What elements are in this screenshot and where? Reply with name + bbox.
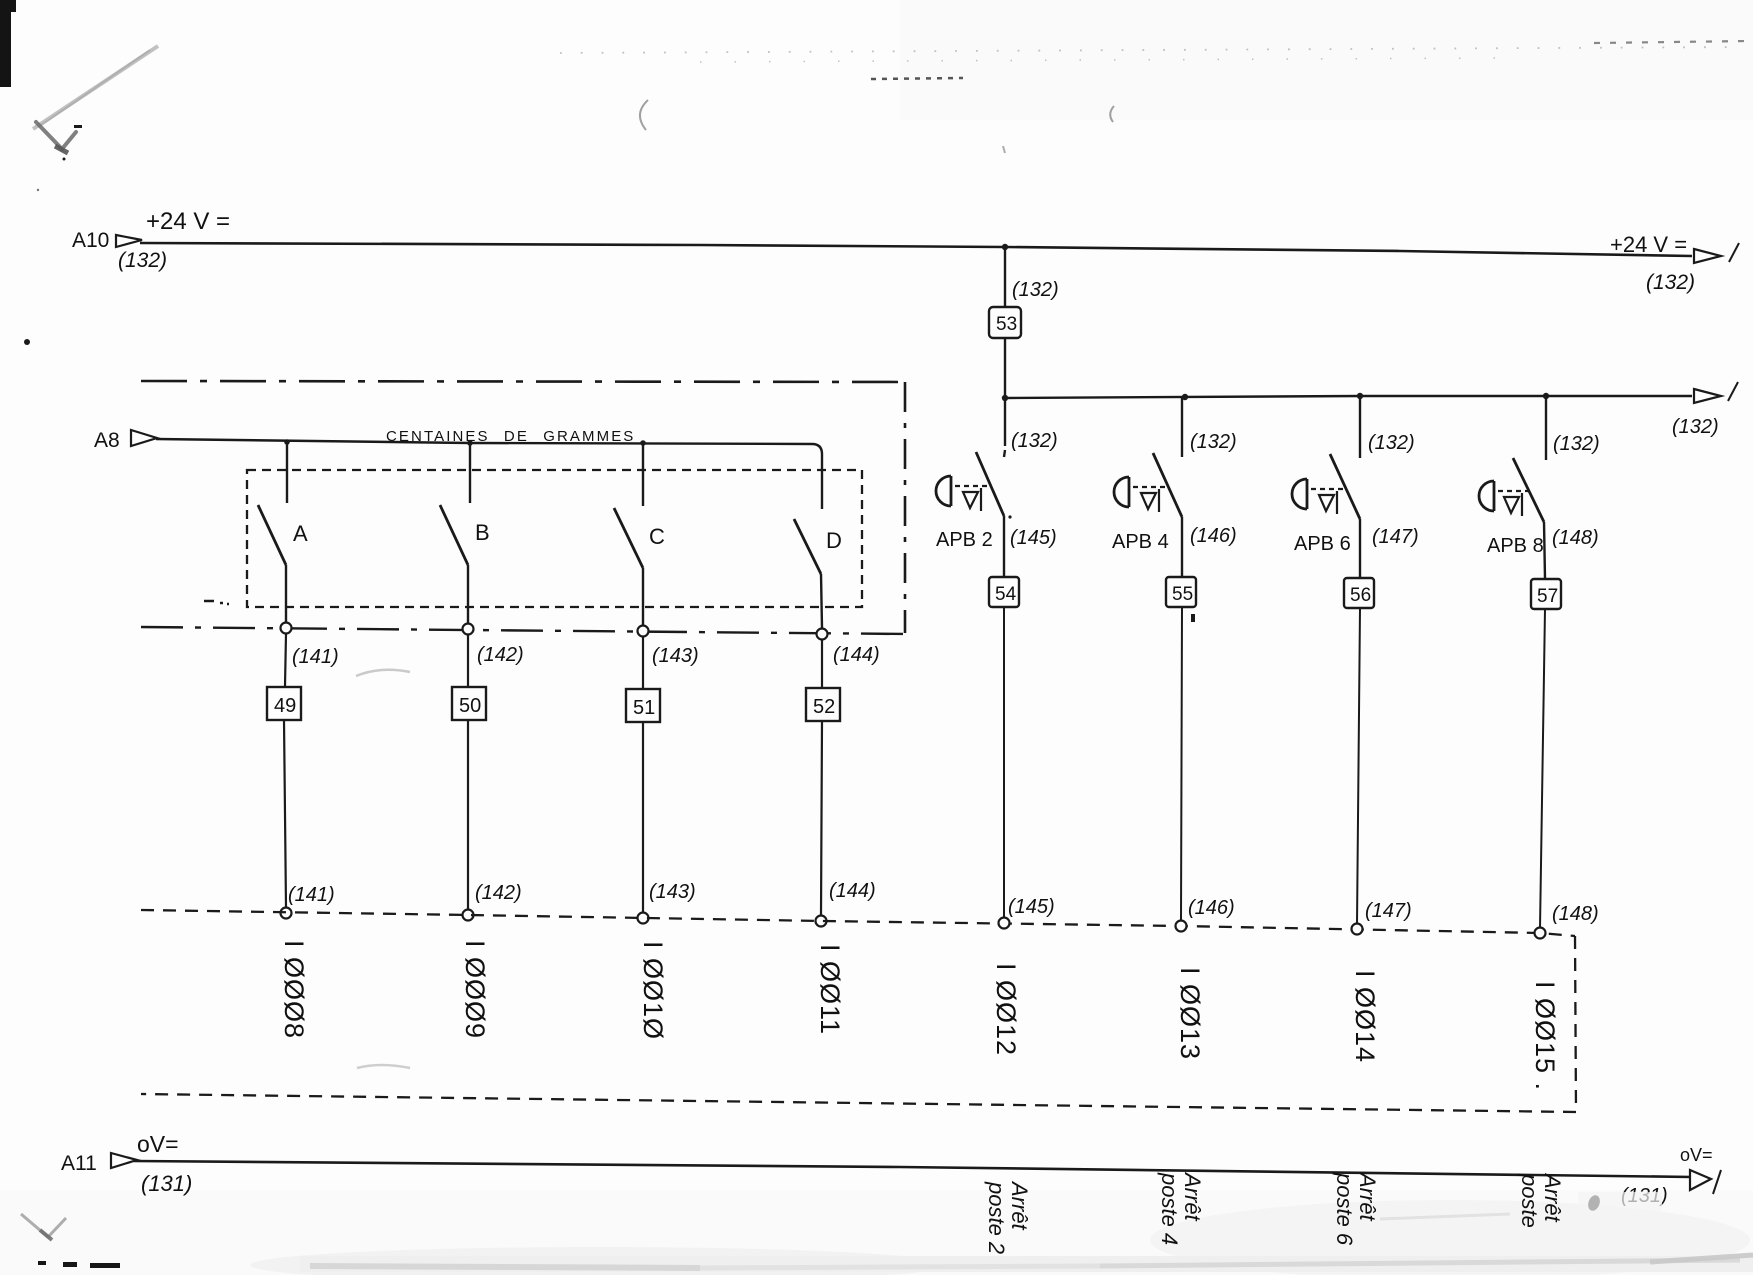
svg-text:APB 6: APB 6 <box>1294 533 1351 555</box>
svg-text:57: 57 <box>1537 586 1558 607</box>
svg-text:I ØØØ8: I ØØØ8 <box>279 940 309 1039</box>
svg-text:(132): (132) <box>1012 279 1059 301</box>
svg-text:52: 52 <box>813 696 835 718</box>
svg-text:C: C <box>649 524 665 549</box>
svg-text:51: 51 <box>633 697 655 719</box>
svg-text:(144): (144) <box>833 644 880 666</box>
svg-text:I ØØØ9: I ØØØ9 <box>460 940 490 1039</box>
svg-text:I ØØ13: I ØØ13 <box>1175 967 1205 1060</box>
svg-text:(147): (147) <box>1372 526 1419 548</box>
svg-text:APB 4: APB 4 <box>1112 531 1169 553</box>
svg-text:CENTAINES DE GRAMMES: CENTAINES DE GRAMMES <box>386 428 635 445</box>
svg-text:D: D <box>826 528 842 553</box>
svg-text:(148): (148) <box>1552 903 1599 925</box>
svg-text:(143): (143) <box>649 881 696 903</box>
svg-text:(148): (148) <box>1552 527 1599 549</box>
svg-text:oV=: oV= <box>137 1131 179 1157</box>
svg-text:(146): (146) <box>1188 897 1235 919</box>
svg-text:A10: A10 <box>72 229 109 252</box>
svg-text:A11: A11 <box>61 1152 97 1175</box>
svg-text:(132): (132) <box>1553 433 1600 455</box>
svg-text:A8: A8 <box>94 429 120 452</box>
svg-text:Arrêt: Arrêt <box>1540 1172 1565 1223</box>
svg-text:53: 53 <box>996 314 1017 335</box>
svg-text:(132): (132) <box>1190 431 1237 453</box>
svg-text:(131): (131) <box>141 1171 192 1196</box>
svg-text:54: 54 <box>995 584 1017 605</box>
svg-text:(142): (142) <box>475 882 522 904</box>
svg-text:49: 49 <box>274 695 296 717</box>
svg-text:+24 V =: +24 V = <box>146 208 230 235</box>
svg-text:56: 56 <box>1350 585 1371 606</box>
svg-text:oV=: oV= <box>1680 1145 1713 1165</box>
svg-text:(142): (142) <box>477 644 524 666</box>
svg-text:I ØØ1Ø: I ØØ1Ø <box>638 941 668 1040</box>
svg-text:(143): (143) <box>652 645 699 667</box>
svg-text:poste 6: poste 6 <box>1332 1172 1357 1246</box>
svg-text:poste 4: poste 4 <box>1157 1172 1182 1245</box>
svg-text:(132): (132) <box>1011 430 1058 452</box>
svg-text:(145): (145) <box>1010 527 1057 549</box>
svg-text:(141): (141) <box>292 646 339 668</box>
svg-text:(147): (147) <box>1365 900 1412 922</box>
svg-text:(132): (132) <box>1368 432 1415 454</box>
svg-text:Arrêt: Arrêt <box>1180 1171 1205 1222</box>
svg-text:I ØØ14: I ØØ14 <box>1350 970 1380 1063</box>
svg-text:50: 50 <box>459 695 481 717</box>
svg-text:poste 2: poste 2 <box>984 1181 1009 1254</box>
svg-text:+24 V =: +24 V = <box>1610 232 1687 257</box>
svg-text:A: A <box>293 521 308 546</box>
svg-text:Arrêt: Arrêt <box>1355 1171 1380 1222</box>
svg-text:(132): (132) <box>118 249 167 272</box>
svg-text:55: 55 <box>1172 584 1193 605</box>
svg-text:(145): (145) <box>1008 896 1055 918</box>
svg-text:Arrêt: Arrêt <box>1007 1180 1032 1231</box>
svg-text:(132): (132) <box>1672 416 1719 438</box>
svg-text:I ØØ15 .: I ØØ15 . <box>1530 981 1560 1091</box>
svg-text:(132): (132) <box>1646 271 1695 294</box>
svg-text:(141): (141) <box>288 884 335 906</box>
svg-text:APB 2: APB 2 <box>936 529 993 551</box>
svg-text:(146): (146) <box>1190 525 1237 547</box>
svg-text:(144): (144) <box>829 880 876 902</box>
svg-text:poste: poste <box>1517 1173 1542 1228</box>
svg-text:I ØØ12: I ØØ12 <box>991 963 1021 1056</box>
svg-text:B: B <box>475 520 490 545</box>
svg-text:I ØØ11: I ØØ11 <box>815 944 845 1035</box>
svg-text:APB 8: APB 8 <box>1487 535 1544 557</box>
